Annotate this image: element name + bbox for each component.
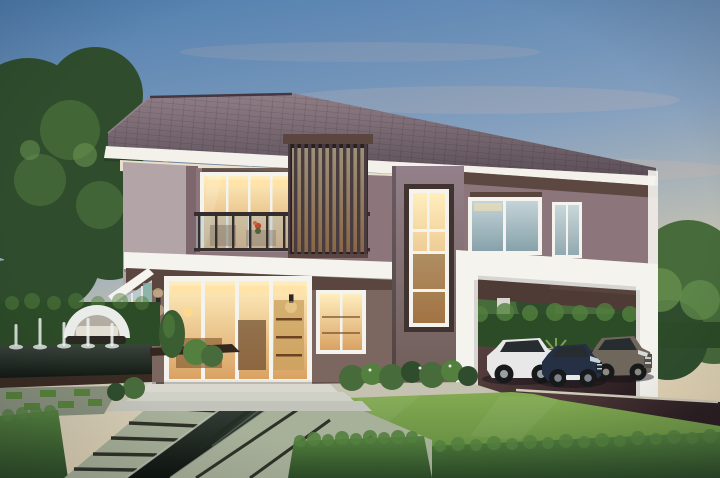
vignette-overlay	[0, 0, 720, 478]
architectural-rendering	[0, 0, 720, 478]
